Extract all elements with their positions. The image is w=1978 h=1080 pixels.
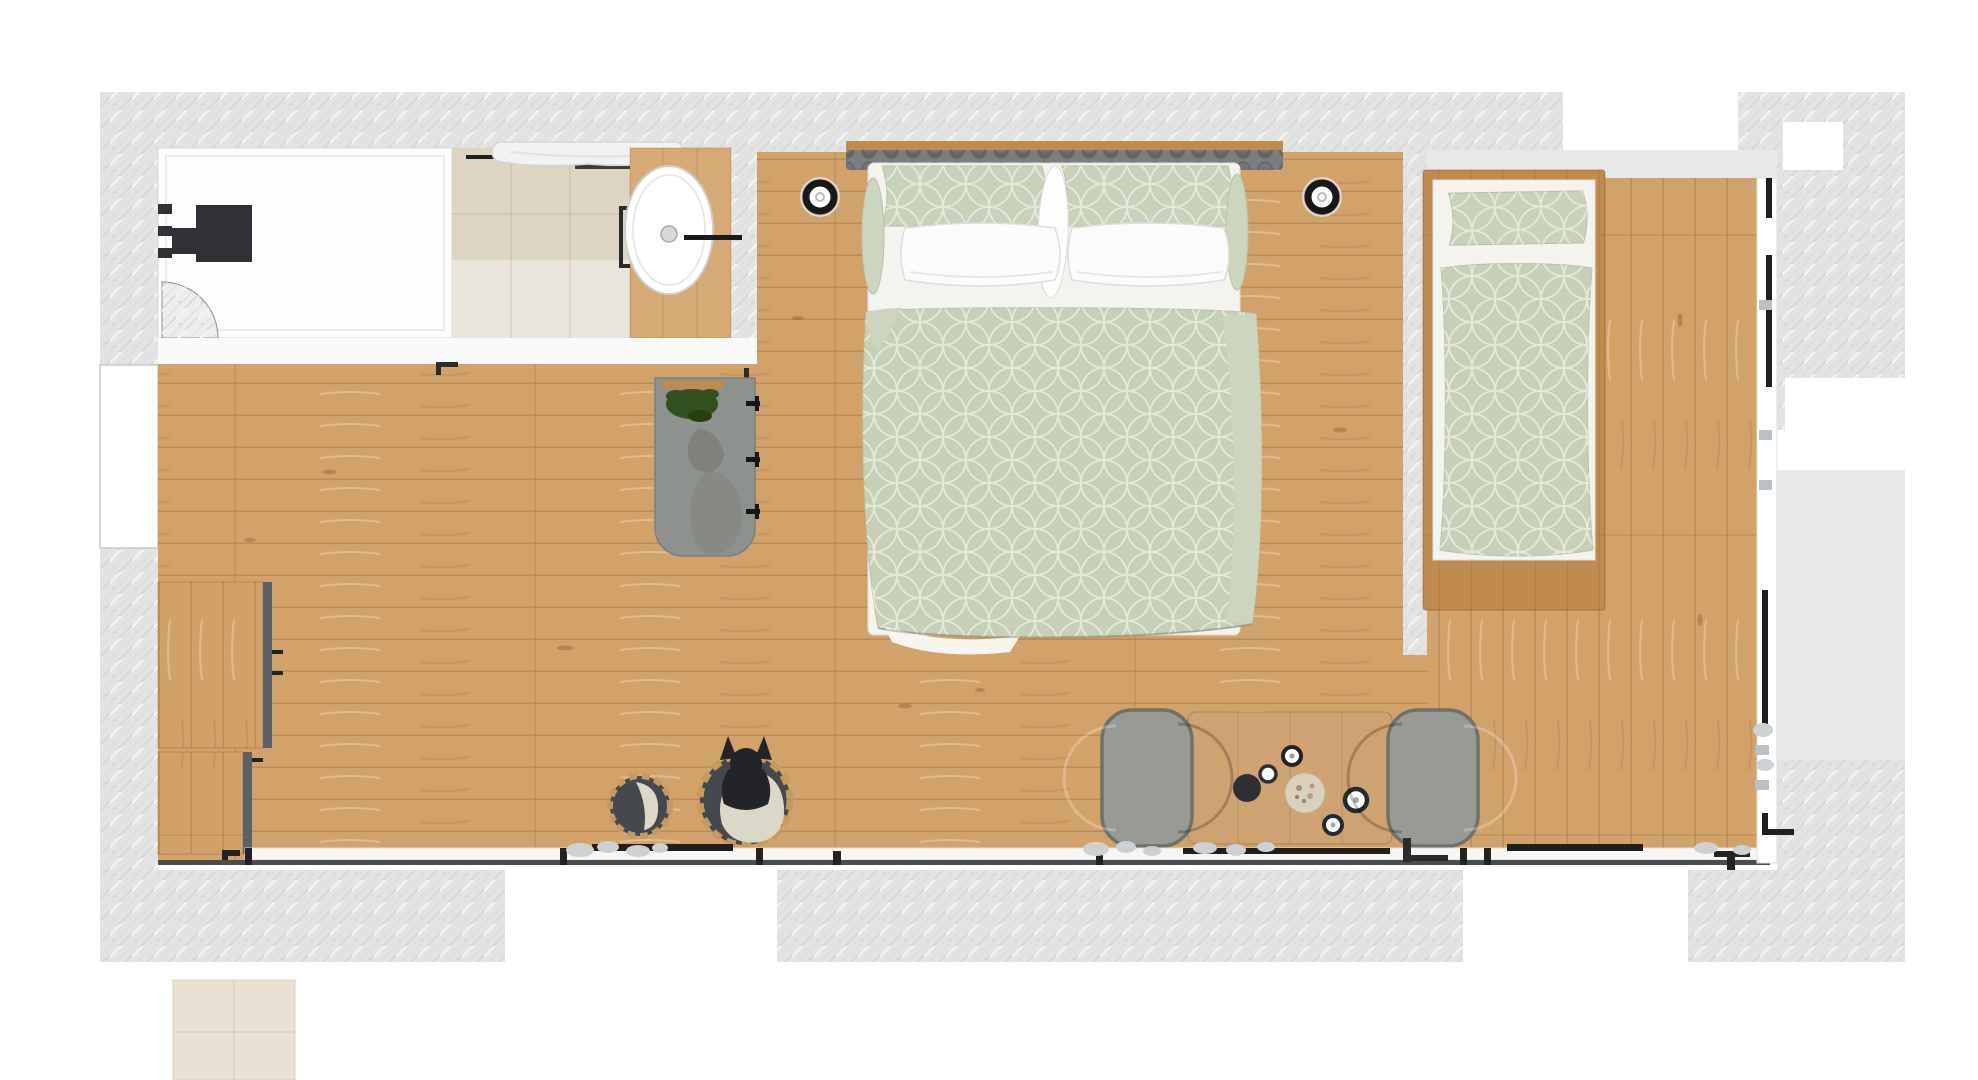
vanity [619,148,742,338]
vanity-towel-bar [619,206,623,268]
bed-frame-top [846,141,1283,151]
cabinet-handle [272,650,283,654]
bottom-wall-line [158,860,1770,865]
pillow-white-right [1068,223,1229,286]
wall-light-right [1303,178,1341,216]
faucet [684,235,742,240]
accent-pillow-left [862,178,884,294]
wall-window-cutout-right [1785,378,1905,470]
double-bed [846,141,1283,654]
plant-stand [655,378,760,556]
terrace-right [1777,470,1905,760]
wall-light-left [801,178,839,216]
accent-pillow-right [1226,174,1248,290]
wall-window-cutout-top [1563,92,1738,152]
sliding-door-leaf [1507,844,1643,851]
pillow-white-left [901,223,1060,286]
dining-set [1064,710,1516,846]
wall-window-cutout-corner [1783,122,1843,170]
pebbles [1753,723,1773,737]
decor-centerpiece [1285,773,1325,813]
pillow-green-left [882,166,1046,226]
shower [452,148,630,338]
bathroom-south-wall [158,338,757,364]
cabinet-handle [272,671,283,675]
outside-tile-patch [173,980,295,1080]
drain [661,226,677,242]
left-bay-window [100,365,158,548]
single-pillow [1449,191,1588,245]
single-bed [1423,170,1605,610]
small-basket [610,776,670,836]
bathroom [158,142,757,382]
floor-plan [0,0,1978,1080]
pillow-green-right [1062,166,1232,226]
duvet [863,308,1262,655]
single-duvet [1440,264,1593,557]
mat-wood-strip [662,381,724,389]
cabinet-handle [252,758,263,762]
single-room [1423,170,1605,610]
